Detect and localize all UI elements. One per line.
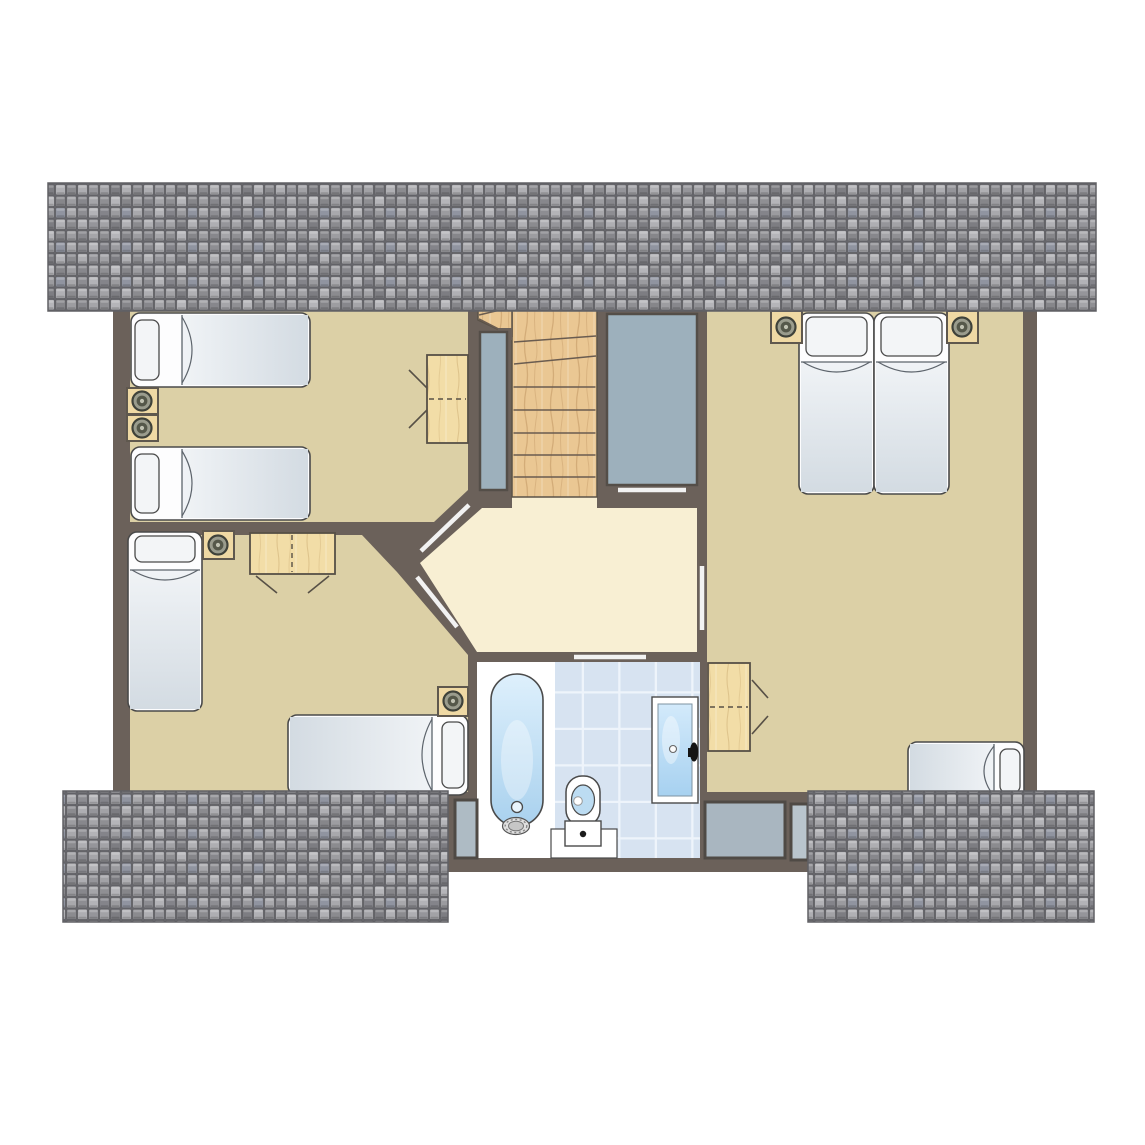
bed-single-3 bbox=[128, 532, 202, 711]
staircase bbox=[512, 310, 597, 497]
lamp-5-bulb bbox=[784, 325, 788, 329]
lamp-4 bbox=[444, 692, 463, 711]
bed-single-3-pillow bbox=[135, 536, 195, 562]
lamp-1 bbox=[133, 392, 152, 411]
void-panel bbox=[480, 332, 507, 490]
lamp-2 bbox=[133, 419, 152, 438]
bed-double-left bbox=[799, 313, 874, 494]
bathtub-overflow bbox=[512, 802, 523, 813]
bed-single-4-blanket bbox=[290, 717, 432, 793]
closet bbox=[607, 314, 697, 485]
bed-single-3-blanket bbox=[130, 570, 200, 709]
bed-single-2-blanket bbox=[182, 449, 308, 518]
stairs-landing-connector bbox=[512, 497, 597, 510]
dormer-window-right-1 bbox=[705, 802, 785, 858]
bed-single-4 bbox=[288, 715, 468, 795]
dormer-window-left bbox=[455, 800, 477, 858]
toilet-flush bbox=[574, 797, 583, 806]
toilet-tank-button bbox=[580, 831, 586, 837]
bed-single-1 bbox=[131, 313, 310, 387]
glass-door-handle-base bbox=[688, 748, 694, 757]
bed-double-right-blanket bbox=[876, 362, 947, 492]
bed-single-1-blanket bbox=[182, 315, 308, 385]
bed-double-right-pillow bbox=[881, 317, 942, 356]
glass-door-knob bbox=[670, 746, 677, 753]
bed-single-2 bbox=[131, 447, 310, 520]
bed-single-1-pillow bbox=[135, 320, 159, 380]
floor-plan bbox=[0, 0, 1145, 1145]
glass-door-shine bbox=[662, 716, 680, 764]
floor-plan-canvas bbox=[0, 0, 1145, 1145]
bathtub-faucet-inner bbox=[509, 821, 524, 831]
lamp-6-bulb bbox=[960, 325, 964, 329]
bed-single-4-pillow bbox=[442, 722, 464, 788]
bed-double-left-pillow bbox=[806, 317, 867, 356]
bed-single-2-pillow bbox=[135, 454, 159, 513]
dormer-window-right-2 bbox=[791, 804, 808, 860]
roof-top bbox=[48, 183, 1096, 311]
bed-single-5-blanket bbox=[910, 744, 994, 798]
lamp-3 bbox=[209, 536, 228, 555]
lamp-6 bbox=[953, 318, 972, 337]
bed-double-left-blanket bbox=[801, 362, 872, 492]
lamp-2-bulb bbox=[140, 426, 144, 430]
lamp-3-bulb bbox=[216, 543, 220, 547]
bed-single-5-pillow bbox=[1000, 749, 1020, 793]
lamp-4-bulb bbox=[451, 699, 455, 703]
bathtub-glow bbox=[501, 720, 533, 800]
lamp-5 bbox=[777, 318, 796, 337]
lamp-1-bulb bbox=[140, 399, 144, 403]
bed-double-right bbox=[874, 313, 949, 494]
roof-bottom-right bbox=[808, 791, 1094, 922]
roof-bottom-left bbox=[63, 791, 448, 922]
